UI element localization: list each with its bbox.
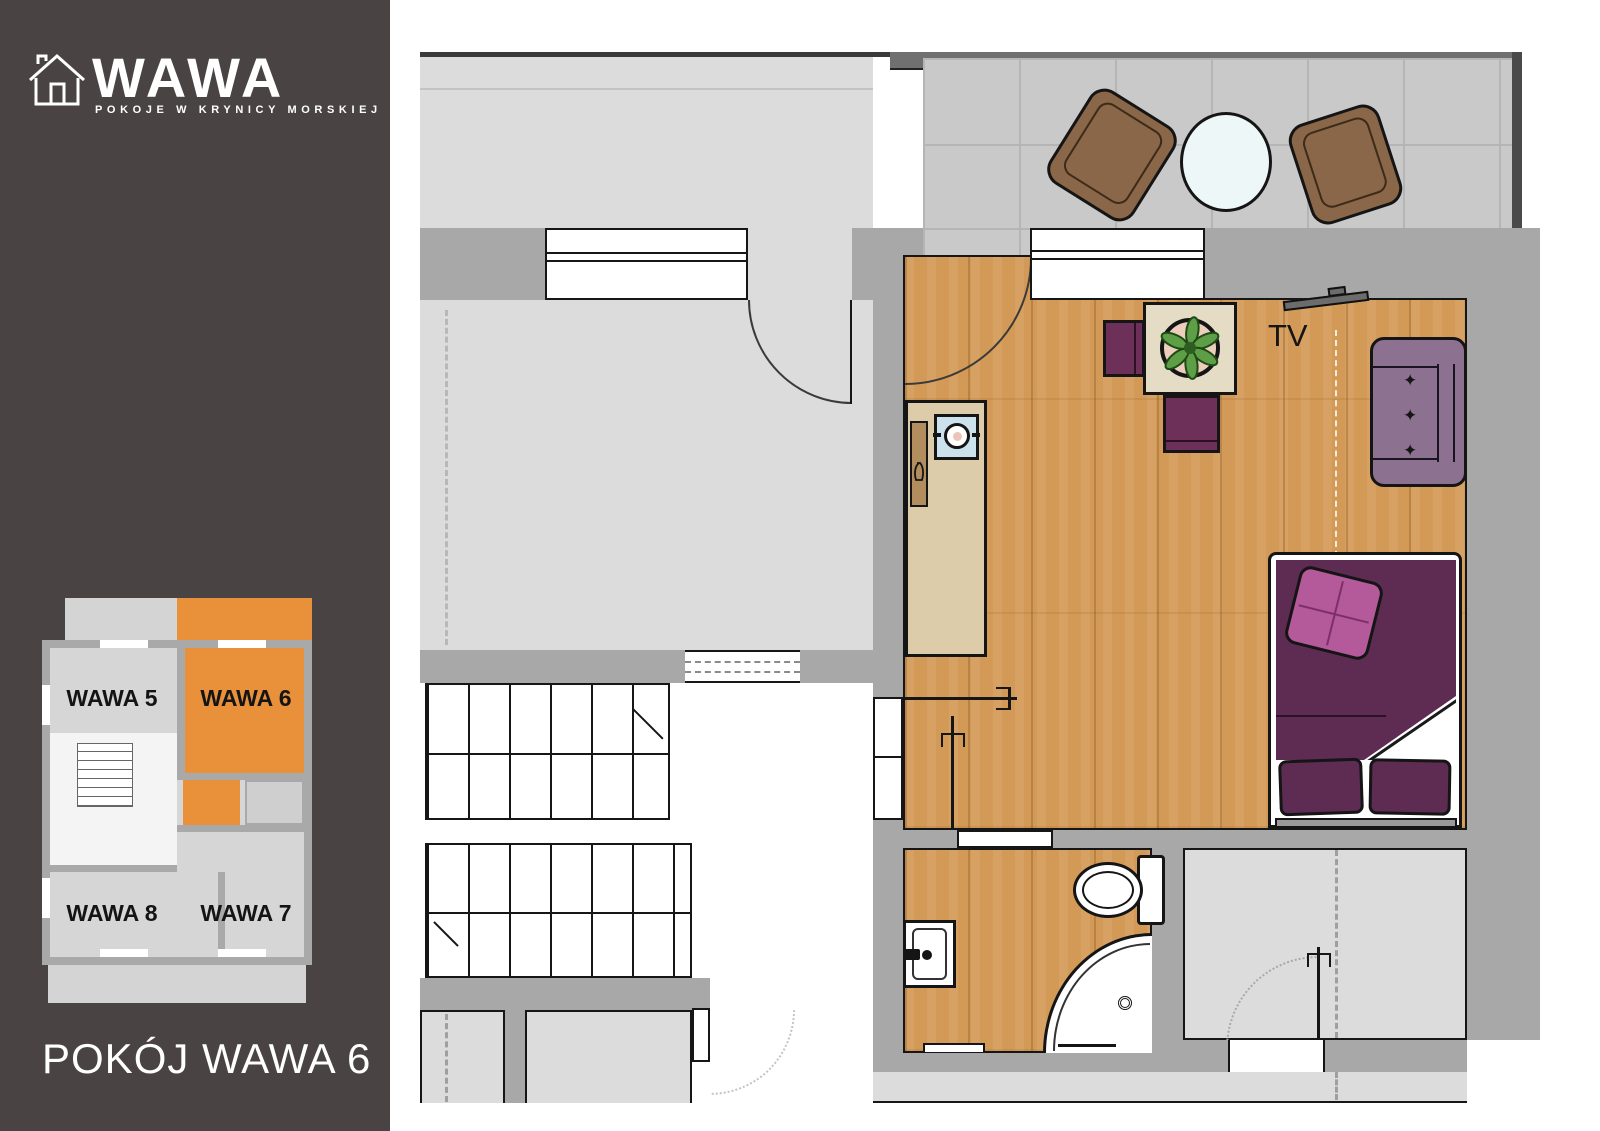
- chair-cushion-line: [1300, 114, 1390, 210]
- mini-room-orange-annex: [183, 780, 240, 825]
- door-leaf: [850, 300, 852, 404]
- mini-floorplan: WAWA 5 WAWA 6 WAWA 8 WAWA 7: [42, 590, 312, 1010]
- wall: [1183, 1040, 1467, 1072]
- chair-line: [1166, 440, 1217, 442]
- sliding-door-handle: [941, 733, 943, 747]
- mini-window: [42, 685, 50, 725]
- page-title: POKÓJ WAWA 6: [42, 1035, 371, 1083]
- kitchenette: [905, 400, 987, 657]
- brand-logo: WAWA: [92, 50, 285, 106]
- toilet-bowl-inner: [1082, 871, 1134, 909]
- mini-label-wawa7: WAWA 7: [187, 900, 305, 927]
- chair: [1163, 395, 1220, 453]
- page: WAWA POKOJE W KRYNICY MORSKIEJ W: [0, 0, 1600, 1131]
- door-handle: [1307, 953, 1309, 967]
- bed-footboard: [1275, 818, 1457, 828]
- dashed-centerline: [1335, 1072, 1338, 1100]
- kitchen-sink: [934, 414, 979, 460]
- stairs-mid-line: [427, 912, 690, 914]
- sink-tap: [933, 433, 941, 437]
- washbasin: [903, 920, 956, 988]
- duvet-fold: [1364, 696, 1456, 760]
- wall: [420, 978, 710, 1010]
- balcony-table: [1180, 112, 1272, 212]
- bottom-room-floor: [1183, 848, 1467, 1040]
- chair: [1103, 320, 1145, 377]
- washbasin-tap: [903, 949, 920, 960]
- mini-label-wawa6: WAWA 6: [187, 685, 305, 712]
- sliding-door-line: [905, 697, 1017, 700]
- wall-left: [873, 300, 903, 697]
- wall: [1205, 228, 1540, 300]
- mini-balcony-strip-highlight: [177, 598, 312, 640]
- mini-window: [100, 640, 148, 648]
- wall: [505, 1010, 525, 1103]
- lower-floor-strip: [873, 1072, 1467, 1103]
- balcony-window: [1030, 228, 1205, 300]
- mini-window: [42, 878, 50, 918]
- wall: [420, 650, 873, 683]
- dashed-centerline: [445, 310, 448, 645]
- balcony-divider-wall: [1512, 52, 1522, 228]
- mini-balcony-strip: [65, 598, 177, 640]
- door-handle: [1307, 953, 1331, 955]
- kettle-icon: [912, 461, 926, 483]
- door-opening: [1228, 1040, 1325, 1072]
- stairs-break-mark: [433, 921, 458, 946]
- room-entry-door: [873, 697, 903, 820]
- mini-window: [100, 949, 148, 957]
- sink-bowl: [944, 423, 970, 449]
- stairs-upper-flight: [425, 683, 670, 820]
- balcony-floor: [923, 228, 1030, 255]
- duvet-seam: [1276, 715, 1386, 717]
- window-rail: [1032, 250, 1203, 260]
- sofa-backrest-line: [1437, 364, 1439, 462]
- mini-wall: [177, 773, 312, 780]
- shower-drain: [1118, 996, 1132, 1010]
- chair-line: [1134, 323, 1136, 374]
- house-icon: [26, 48, 88, 110]
- stairs-lower-flight: [425, 843, 692, 978]
- sofa-button: ✦: [1403, 407, 1417, 424]
- bottom-left-room: [525, 1010, 692, 1103]
- corridor-door: [692, 1008, 710, 1062]
- wall-right: [1467, 293, 1540, 1040]
- door-handle: [1329, 953, 1331, 967]
- dashed-centerline: [445, 1014, 448, 1102]
- bed-pillow: [1369, 758, 1452, 815]
- toilet-bowl: [1073, 862, 1143, 918]
- bed-pillow: [1278, 758, 1364, 817]
- mini-wall: [50, 865, 177, 872]
- sliding-door-handle: [996, 687, 1010, 689]
- bottom-left-room: [420, 1010, 505, 1103]
- stairs-break-mark: [632, 708, 663, 739]
- neighbour-room-line: [420, 88, 873, 90]
- dashed-centerline: [1335, 850, 1338, 1038]
- sofa-button: ✦: [1403, 372, 1417, 389]
- mini-stairs: [77, 743, 133, 807]
- brand-tagline: POKOJE W KRYNICY MORSKIEJ: [95, 104, 382, 116]
- sink-tap: [972, 433, 980, 437]
- sink-drain: [953, 432, 962, 441]
- passage-opening: [685, 650, 800, 683]
- wall: [1183, 830, 1467, 848]
- mini-label-wawa8: WAWA 8: [52, 900, 172, 927]
- bathroom-door: [957, 830, 1053, 848]
- sofa-button: ✦: [1403, 442, 1417, 459]
- washbasin-tap-knob: [922, 950, 932, 960]
- sliding-door-handle: [963, 733, 965, 747]
- sliding-door-handle: [941, 733, 965, 735]
- dining-table: [1143, 302, 1237, 395]
- sofa: ✦ ✦ ✦: [1370, 337, 1467, 487]
- bed: [1268, 552, 1462, 828]
- sofa-arm-line: [1373, 366, 1439, 368]
- window: [545, 228, 748, 300]
- tv-label: TV: [1268, 318, 1308, 354]
- mini-wall: [177, 640, 185, 780]
- mini-window: [218, 640, 266, 648]
- sofa-backrest-line: [1453, 364, 1455, 462]
- mini-label-wawa5: WAWA 5: [52, 685, 172, 712]
- floorplan: TV ✦ ✦ ✦: [390, 0, 1600, 1131]
- sliding-door-handle: [1008, 687, 1011, 710]
- mini-balcony-bottom: [48, 965, 306, 1003]
- door-leaf: [1317, 947, 1320, 1045]
- door-panel-line: [875, 756, 901, 758]
- stairs-mid-line: [427, 753, 668, 755]
- mini-wall: [177, 825, 312, 832]
- plant-icon: [1159, 316, 1221, 380]
- shower-edge-line: [1058, 1044, 1116, 1047]
- window-rail: [547, 252, 746, 262]
- sliding-door-handle: [996, 708, 1010, 710]
- wall: [420, 228, 545, 300]
- mini-room-bath: [245, 780, 304, 825]
- sidebar: WAWA POKOJE W KRYNICY MORSKIEJ W: [0, 0, 390, 1131]
- mini-window: [218, 949, 266, 957]
